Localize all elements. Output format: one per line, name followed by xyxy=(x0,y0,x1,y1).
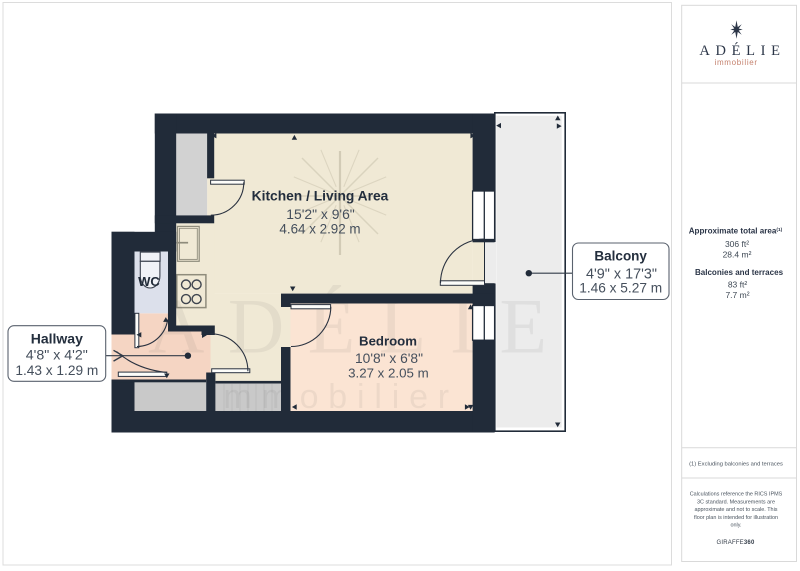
svg-text:83 ft²: 83 ft² xyxy=(728,280,748,290)
svg-text:Kitchen / Living Area: Kitchen / Living Area xyxy=(252,188,389,203)
svg-text:only.: only. xyxy=(730,523,742,529)
svg-text:4'8" x 4'2": 4'8" x 4'2" xyxy=(26,348,88,364)
svg-text:Approximate total area(1): Approximate total area(1) xyxy=(689,226,783,235)
svg-text:Balconies and terraces: Balconies and terraces xyxy=(695,268,784,277)
svg-text:1.46 x 5.27 m: 1.46 x 5.27 m xyxy=(579,280,662,295)
svg-text:3.27 x 2.05 m: 3.27 x 2.05 m xyxy=(348,366,429,381)
svg-text:Bedroom: Bedroom xyxy=(359,334,417,349)
svg-text:3C standard. Measurements are: 3C standard. Measurements are xyxy=(697,499,775,505)
svg-text:306 ft²: 306 ft² xyxy=(725,239,749,249)
svg-text:floor plan is intended for ill: floor plan is intended for illustration xyxy=(694,515,778,521)
svg-text:1.43 x 1.29 m: 1.43 x 1.29 m xyxy=(15,363,98,378)
svg-text:ADÉLIE: ADÉLIE xyxy=(699,42,785,59)
svg-text:immobilier: immobilier xyxy=(206,378,459,416)
svg-text:(1) Excluding balconies and te: (1) Excluding balconies and terraces xyxy=(689,461,783,467)
svg-text:Calculations reference the RIC: Calculations reference the RICS IPMS xyxy=(690,492,783,498)
svg-text:15'2" x 9'6": 15'2" x 9'6" xyxy=(286,206,355,222)
svg-text:immobilier: immobilier xyxy=(715,58,758,67)
svg-text:4.64 x 2.92 m: 4.64 x 2.92 m xyxy=(279,222,360,237)
svg-text:7.7 m²: 7.7 m² xyxy=(725,290,749,300)
svg-text:approximate and not to scale.: approximate and not to scale. This xyxy=(694,507,777,513)
svg-text:28.4 m²: 28.4 m² xyxy=(723,249,752,259)
svg-text:GIRAFFE360: GIRAFFE360 xyxy=(716,540,754,546)
svg-text:10'8" x 6'8": 10'8" x 6'8" xyxy=(355,351,423,366)
svg-text:Balcony: Balcony xyxy=(594,248,647,263)
svg-text:Hallway: Hallway xyxy=(31,331,83,347)
